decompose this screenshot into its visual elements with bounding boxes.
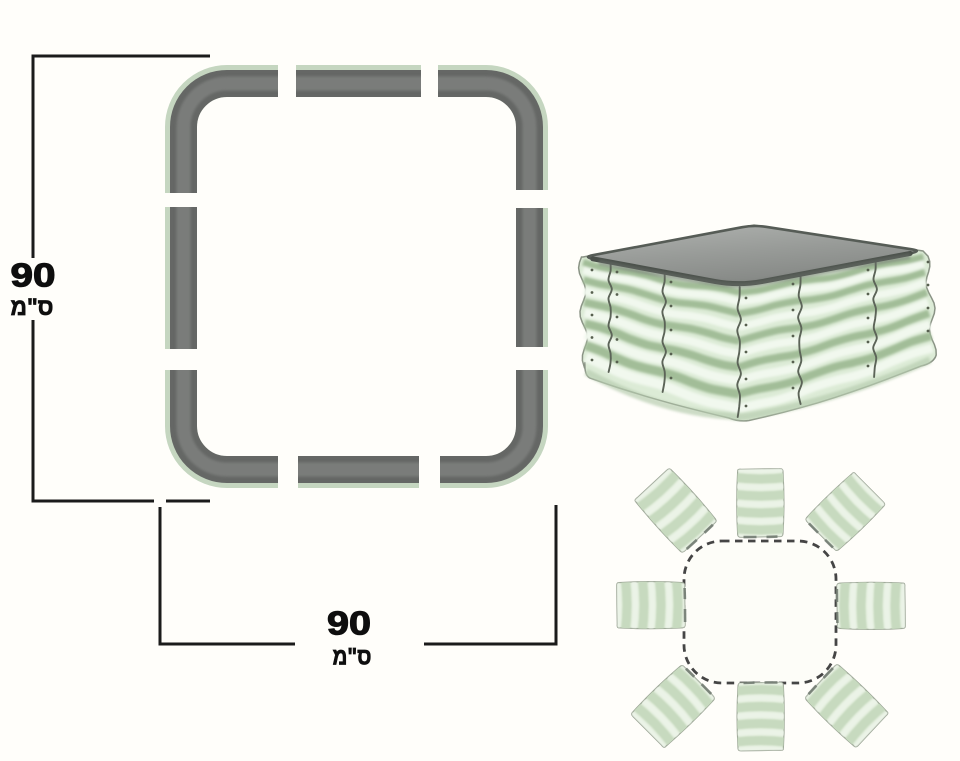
svg-text:90: 90 (327, 605, 371, 642)
svg-text:90: 90 (11, 257, 56, 294)
svg-text:ס"מ: ס"מ (333, 644, 372, 671)
svg-text:ס"מ: ס"מ (11, 294, 54, 321)
